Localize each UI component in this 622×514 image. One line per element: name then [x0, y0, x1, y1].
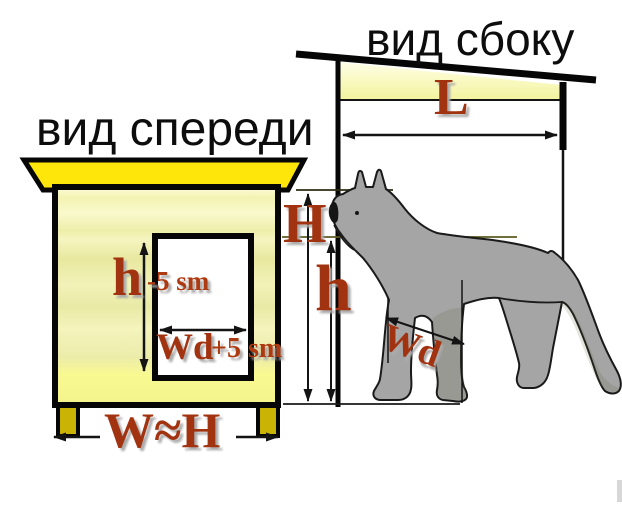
side-view-title: вид сбоку [366, 16, 574, 62]
scrollbar-artifact [617, 480, 622, 502]
front-view-house [24, 160, 304, 437]
length-label: L [434, 72, 469, 124]
doghouse-measurement-diagram: вид сбоку вид спереди L H h h -5 sm Wd +… [0, 0, 622, 514]
dog-nose [329, 202, 339, 223]
dog-body [331, 170, 621, 402]
door-height-offset-label: -5 sm [147, 268, 209, 295]
nose-height-label: h [315, 256, 352, 322]
base-width-label: W≈H [104, 405, 220, 455]
front-view-title: вид спереди [36, 106, 314, 154]
door-height-main-label: h [112, 250, 142, 304]
door-width-main-label: Wd [156, 329, 214, 366]
dog-eye [355, 211, 359, 215]
front-view-foot-left [58, 405, 78, 436]
door-width-offset-label: +5 sm [211, 335, 282, 363]
diagram-canvas [0, 0, 622, 514]
dog-silhouette [329, 170, 621, 402]
total-height-label: H [283, 196, 327, 252]
front-view-foot-right [258, 405, 278, 436]
